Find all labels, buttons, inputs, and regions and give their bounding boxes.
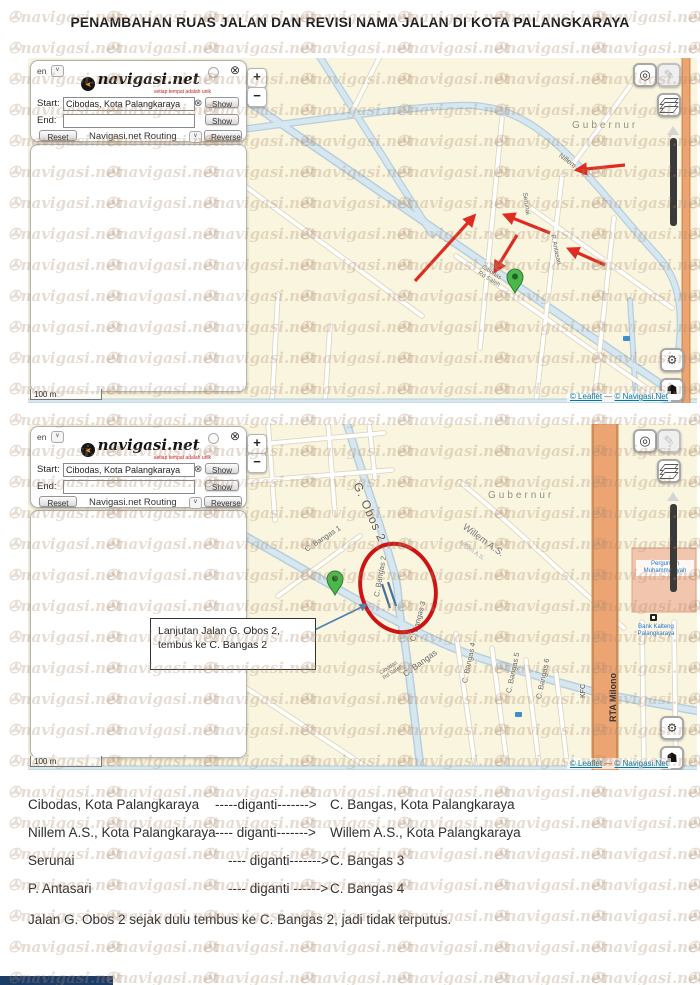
poi-icon [623, 336, 630, 341]
navigasi-logo: ➤ navigasi.net setiap tempat adalah unik [81, 436, 211, 461]
layers-icon [662, 98, 676, 112]
end-row: End: [37, 481, 61, 492]
new-name: C. Bangas, Kota Palangkaraya [330, 797, 515, 812]
layers-button[interactable] [657, 459, 681, 483]
map-attribution: © Leaflet — © Navigasi.Net [567, 758, 671, 769]
new-name: C. Bangas 4 [330, 881, 404, 896]
note-text: Jalan G. Obos 2 sejak dulu tembus ke C. … [28, 912, 451, 927]
map-1-viewport[interactable]: Gubernur Nillem A.S. Serunai P. Antasari… [28, 58, 697, 403]
start-input[interactable] [63, 97, 195, 111]
old-name: Serunai [28, 853, 75, 868]
close-icon[interactable]: ⊗ [230, 430, 240, 442]
routing-mode-label: Navigasi.net Routing [89, 131, 177, 142]
language-label: en [37, 432, 46, 442]
show-end-button[interactable]: Show [205, 114, 239, 125]
edit-button[interactable]: ✎ [657, 63, 681, 87]
leaflet-link[interactable]: © Leaflet [570, 392, 602, 401]
layers-button[interactable] [657, 93, 681, 117]
navigasi-link[interactable]: © Navigasi.Net [615, 392, 668, 401]
page-title: PENAMBAHAN RUAS JALAN DAN REVISI NAMA JA… [0, 15, 700, 30]
poi-label-school: PerguruanMuhammadiyah [636, 560, 694, 576]
close-icon[interactable]: ⊗ [230, 64, 240, 76]
zoom-in-button[interactable]: + [247, 434, 267, 454]
new-name: C. Bangas 3 [330, 853, 404, 868]
reset-button[interactable]: Reset [39, 130, 77, 141]
page: PENAMBAHAN RUAS JALAN DAN REVISI NAMA JA… [0, 0, 700, 985]
change-row: P. Antasari ---- diganti ------> C. Bang… [0, 881, 700, 899]
language-dropdown[interactable]: ∨ [51, 65, 64, 77]
new-name: Willem A.S., Kota Palangkaraya [330, 825, 521, 840]
reverse-button[interactable]: Reverse [204, 130, 242, 141]
start-row: Start: [37, 98, 61, 109]
edit-button[interactable]: ✎ [657, 429, 681, 453]
show-end-button[interactable]: Show [205, 480, 239, 491]
layers-icon [662, 464, 676, 478]
end-input[interactable] [63, 114, 195, 128]
diganti-arrow: ---- diganti-------> [228, 853, 329, 868]
logo-arrow-icon: ➤ [81, 443, 95, 457]
area-label-gubernur: Gubernur [572, 120, 638, 131]
locate-button[interactable]: ◎ [633, 429, 657, 453]
map-scale: 100 m [30, 389, 102, 400]
clear-start-icon[interactable]: ⊗ [194, 464, 202, 475]
poi-label-kfc: KFC [580, 684, 587, 698]
language-label: en [37, 66, 46, 76]
callout-box: Lanjutan Jalan G. Obos 2, tembus ke C. B… [150, 618, 316, 670]
map-attribution: © Leaflet — © Navigasi.Net [567, 391, 671, 402]
zoom-in-button[interactable]: + [247, 68, 267, 88]
change-row: Nillem A.S., Kota Palangkaraya ---- diga… [0, 825, 700, 843]
map-2-viewport[interactable]: Gubernur G. Obos 2 C. Bangas 1 Willem A.… [28, 424, 697, 770]
settings-button[interactable]: ⚙ [660, 716, 684, 740]
start-input[interactable] [63, 463, 195, 477]
change-row: Cibodas, Kota Palangkaraya -----diganti-… [0, 797, 700, 815]
leaflet-link[interactable]: © Leaflet [570, 759, 602, 768]
settings-button[interactable]: ⚙ [660, 348, 684, 372]
navigasi-logo: ➤ navigasi.net setiap tempat adalah unik [81, 70, 211, 95]
end-input[interactable] [63, 480, 195, 494]
end-row: End: [37, 115, 61, 126]
locate-button[interactable]: ◎ [633, 63, 657, 87]
diganti-arrow: ---- diganti-------> [215, 825, 316, 840]
scrollbar-cap [667, 126, 679, 135]
search-panel: en ∨ ⊗ ➤ navigasi.net setiap tempat adal… [30, 426, 247, 508]
navigasi-link[interactable]: © Navigasi.Net [615, 759, 668, 768]
routing-dropdown[interactable]: ∨ [189, 131, 202, 143]
show-start-button[interactable]: Show [205, 463, 239, 474]
zoom-out-button[interactable]: − [247, 453, 267, 473]
routing-mode-label: Navigasi.net Routing [89, 497, 177, 508]
diganti-arrow: -----diganti-------> [215, 797, 317, 812]
old-name: Nillem A.S., Kota Palangkaraya [28, 825, 216, 840]
diganti-arrow: ---- diganti ------> [228, 881, 328, 896]
routing-results-panel [30, 144, 247, 392]
change-row: Serunai ---- diganti-------> C. Bangas 3 [0, 853, 700, 871]
reverse-button[interactable]: Reverse [204, 496, 242, 507]
bank-poi-icon [650, 614, 657, 621]
area-label-gubernur: Gubernur [488, 490, 554, 501]
poi-icon [515, 712, 522, 717]
school-block [632, 548, 696, 612]
street-label-rta-milono: RTA Milono [608, 673, 618, 722]
old-name: Cibodas, Kota Palangkaraya [28, 797, 199, 812]
old-name: P. Antasari [28, 881, 92, 896]
routing-dropdown[interactable]: ∨ [189, 497, 202, 509]
map-scrollbar[interactable] [670, 138, 677, 226]
bottom-bar [0, 976, 113, 985]
poi-label-bank: Bank KaltengPalangkaraya [628, 624, 684, 638]
map-scrollbar[interactable] [670, 504, 677, 592]
logo-arrow-icon: ➤ [81, 77, 95, 91]
zoom-out-button[interactable]: − [247, 87, 267, 107]
start-row: Start: [37, 464, 61, 475]
clear-start-icon[interactable]: ⊗ [194, 98, 202, 109]
scrollbar-cap [667, 492, 679, 501]
search-panel: en ∨ ⊗ ➤ navigasi.net setiap tempat adal… [30, 60, 247, 142]
show-start-button[interactable]: Show [205, 97, 239, 108]
map-scale: 100 m [30, 756, 102, 767]
language-dropdown[interactable]: ∨ [51, 431, 64, 443]
reset-button[interactable]: Reset [39, 496, 77, 507]
